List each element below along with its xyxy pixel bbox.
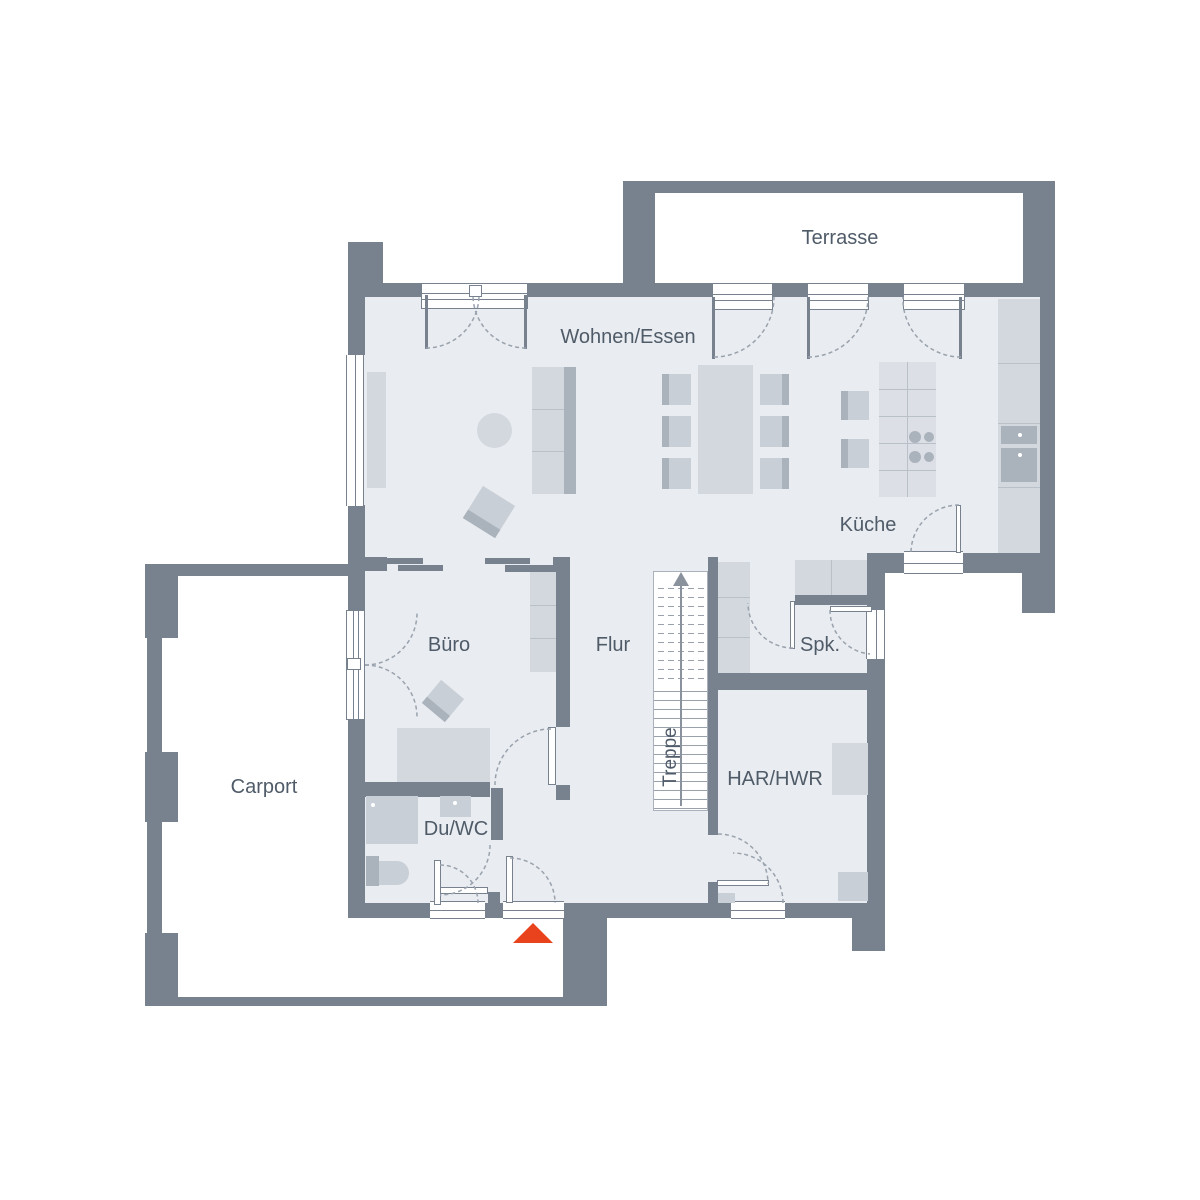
room-label-flur: Flur <box>563 634 663 657</box>
terrace-door-frame <box>807 283 869 310</box>
room-label-har-hwr: HAR/HWR <box>705 768 845 791</box>
cabinet-line <box>718 597 750 598</box>
door-leaf <box>524 295 527 349</box>
terrace-door-frame <box>712 283 773 310</box>
chair <box>662 458 691 489</box>
wall-segment <box>867 553 904 573</box>
wall-segment <box>1022 573 1055 613</box>
wall-segment <box>556 785 570 800</box>
oven-knob <box>1018 433 1022 437</box>
washing-machine <box>838 872 868 901</box>
terrace-door-frame <box>903 283 965 310</box>
toilet-tank <box>366 856 379 886</box>
window <box>346 355 364 506</box>
office-shelf <box>530 572 556 672</box>
hob-burner <box>909 431 921 443</box>
carport-bottom-wall <box>145 997 607 1006</box>
room-label-carport: Carport <box>194 776 334 799</box>
shelf-line <box>530 605 556 606</box>
counter-line <box>831 560 832 595</box>
sliding-door-rail <box>485 558 530 564</box>
door-leaf <box>434 860 441 905</box>
wall-segment <box>783 903 885 918</box>
room-label-du-wc: Du/WC <box>396 818 516 841</box>
wall-segment <box>965 283 1047 297</box>
chair <box>662 416 691 447</box>
door-leaf <box>959 297 962 359</box>
wall-segment <box>708 557 718 835</box>
chair <box>662 374 691 405</box>
wall-segment <box>348 903 432 918</box>
sofa-seam <box>532 451 564 452</box>
bar-stool <box>841 439 869 468</box>
wall-segment <box>867 658 885 918</box>
door-leaf <box>548 727 556 785</box>
island-line <box>879 470 936 471</box>
entrance-door-leaf <box>506 856 513 903</box>
dining-table <box>698 365 753 494</box>
shelf-line <box>530 638 556 639</box>
sliding-door-panel <box>398 565 443 571</box>
room-label-kueche: Küche <box>818 514 918 537</box>
hob-burner <box>909 451 921 463</box>
island-line <box>879 416 936 417</box>
carport-east-wall <box>563 918 607 1006</box>
wall-segment <box>483 903 503 918</box>
wall-segment <box>528 283 712 297</box>
wall-segment <box>963 553 1040 573</box>
island-line <box>879 443 936 444</box>
door-threshold <box>904 551 963 574</box>
shower-drain <box>371 803 375 807</box>
chair <box>760 374 789 405</box>
wall-segment <box>365 782 490 797</box>
wall-segment <box>563 903 733 918</box>
sofa-seam <box>532 409 564 410</box>
wall-segment <box>1023 193 1055 283</box>
oven-knob <box>1018 453 1022 457</box>
sink-tap <box>453 801 457 805</box>
sideboard <box>367 372 386 488</box>
room-label-wohnen-essen: Wohnen/Essen <box>538 326 718 349</box>
room-label-treppe: Treppe <box>660 697 682 817</box>
carport-pillar <box>145 564 178 638</box>
wall-segment <box>869 283 903 297</box>
sliding-door-panel <box>505 565 553 572</box>
room-label-spk: Spk. <box>770 634 870 657</box>
sink <box>440 796 471 817</box>
wall-segment <box>867 573 885 610</box>
door-leaf <box>807 297 810 359</box>
window <box>731 901 785 919</box>
wall-segment <box>623 181 1055 193</box>
bar-stool <box>841 391 869 420</box>
hob-burner <box>924 452 934 462</box>
chair <box>760 416 789 447</box>
carport-pillar <box>145 933 178 1005</box>
wall-segment <box>348 283 365 355</box>
wall-segment <box>852 918 885 951</box>
round-table <box>477 413 512 448</box>
wall-segment <box>348 242 383 283</box>
toilet-bowl <box>379 861 409 885</box>
wall-segment <box>623 193 655 283</box>
cabinet-line <box>998 423 1040 424</box>
pantry-cabinets <box>718 562 750 673</box>
hob-burner <box>924 432 934 442</box>
floor-plan: Terrasse Wohnen/Essen Küche Büro Flur Sp… <box>0 0 1200 1200</box>
room-label-terrasse: Terrasse <box>780 227 900 250</box>
wall-segment <box>348 718 365 903</box>
wall-segment <box>488 892 500 903</box>
carport-pillar <box>145 752 178 822</box>
wall-segment <box>708 673 885 690</box>
chair <box>760 458 789 489</box>
door-leaf <box>425 295 428 349</box>
door-leaf <box>830 606 872 612</box>
stair-arrow-up <box>673 572 689 586</box>
sofa-backrest <box>564 367 576 494</box>
door-leaf <box>956 505 961 553</box>
island-line <box>907 362 908 497</box>
wall-segment <box>1040 283 1055 573</box>
door-pivot-marker <box>347 658 361 670</box>
cabinet-line <box>998 363 1040 364</box>
door-pivot-marker <box>469 285 482 297</box>
door-threshold <box>503 901 564 919</box>
room-label-buero: Büro <box>399 634 499 657</box>
cabinet-line <box>718 637 750 638</box>
door-leaf <box>440 887 488 894</box>
desk <box>397 728 490 782</box>
sliding-door-rail <box>378 558 423 564</box>
door-leaf <box>717 880 769 886</box>
island-line <box>879 389 936 390</box>
door-mat <box>718 893 735 903</box>
cabinet-line <box>998 487 1040 488</box>
wall-segment <box>773 283 807 297</box>
wall-segment <box>348 505 365 612</box>
entrance-marker <box>513 923 553 943</box>
